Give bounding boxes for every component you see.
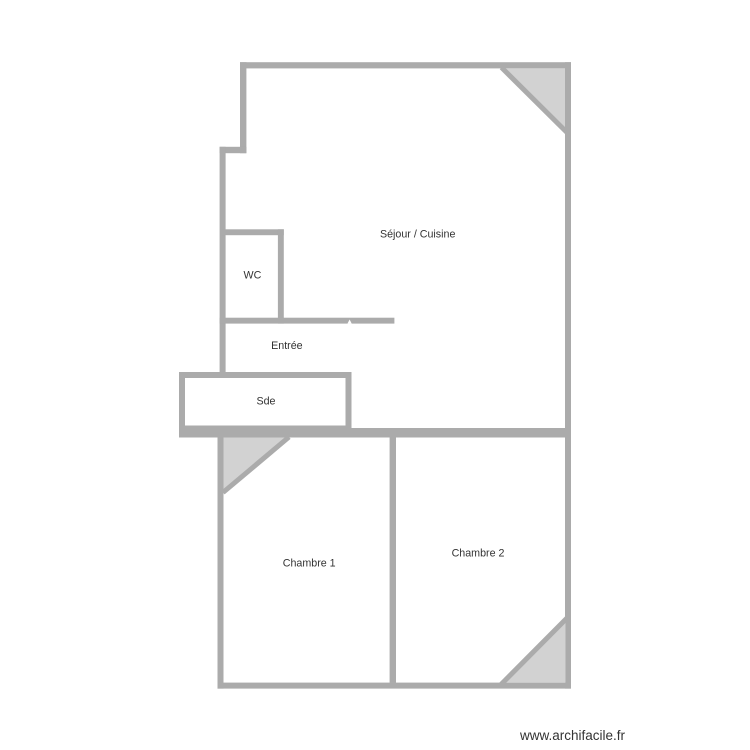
svg-text:www.archifacile.fr: www.archifacile.fr xyxy=(519,728,626,743)
svg-text:Chambre 1: Chambre 1 xyxy=(283,558,336,570)
svg-text:Chambre 2: Chambre 2 xyxy=(452,548,505,560)
svg-text:WC: WC xyxy=(243,270,261,282)
svg-text:Entrée: Entrée xyxy=(271,340,303,352)
svg-text:Séjour / Cuisine: Séjour / Cuisine xyxy=(380,229,456,241)
svg-text:Sde: Sde xyxy=(256,395,275,407)
